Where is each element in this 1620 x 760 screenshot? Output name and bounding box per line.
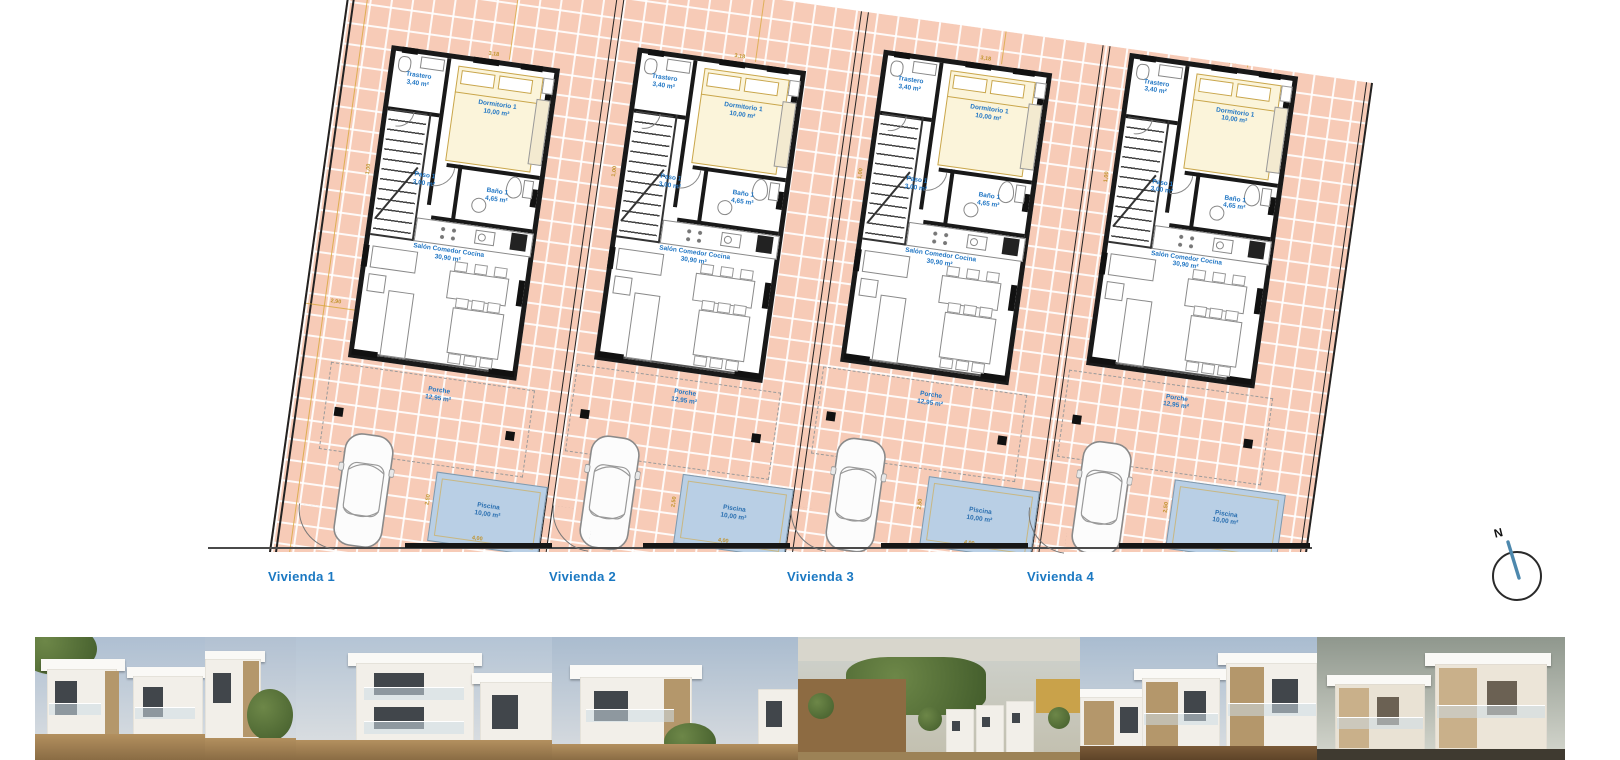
kitchen-sink [474, 230, 496, 247]
furniture-chair [971, 362, 985, 374]
furniture-nightstand [787, 80, 800, 97]
site-plan: 2,90 [0, 0, 1620, 552]
house-floorplan: Trastero3,40 m² Dormitorio 110,00 m² Pas… [348, 45, 560, 381]
kitchen-stove [926, 228, 952, 246]
window [1253, 288, 1263, 315]
kitchen-stove [1172, 230, 1198, 248]
furniture-chair [709, 358, 723, 370]
photo-strip [0, 637, 1620, 760]
dimension-line [509, 0, 523, 60]
kitchen-stove [434, 223, 460, 241]
window [1008, 285, 1018, 312]
window [521, 63, 544, 72]
fixture-storage-unit [420, 56, 445, 71]
window [648, 49, 665, 57]
furniture-chair [1217, 365, 1231, 377]
project-photo-4 [552, 637, 798, 760]
kitchen-stove [680, 226, 706, 244]
furniture-chair [479, 357, 493, 369]
dimension-text: 4,00 [471, 535, 482, 542]
window [607, 247, 616, 270]
furniture-chair [1193, 305, 1207, 317]
kitchen-sink [966, 235, 988, 252]
furniture-chair [1209, 307, 1223, 319]
dimension-line [1001, 0, 1015, 65]
furniture-chair [1224, 309, 1238, 321]
porch-post [334, 407, 344, 417]
window [1099, 252, 1108, 275]
porch-post [997, 436, 1007, 446]
furniture-chair [487, 302, 501, 314]
project-photo-6 [1080, 637, 1317, 760]
furniture-chair [455, 298, 469, 310]
furniture-side-table [1104, 281, 1124, 301]
fixture-storage-unit [1158, 64, 1183, 79]
furniture-nightstand [1279, 85, 1292, 102]
dimension-text: 1,00 [857, 168, 864, 179]
furniture-chair [947, 302, 961, 314]
porch-post [580, 409, 590, 419]
kitchen-fridge [1247, 240, 1265, 259]
fixture-storage-unit [912, 61, 937, 76]
window [843, 353, 870, 363]
dimension-text: 1,00 [611, 166, 618, 177]
dimension-text: 1,00 [1103, 171, 1110, 182]
unit-label-vivienda-4: Vivienda 4 [1027, 569, 1094, 585]
dimension-line [1247, 0, 1261, 67]
unit-label-vivienda-1: Vivienda 1 [268, 569, 335, 585]
window [488, 368, 515, 378]
front-fence [881, 543, 1028, 548]
dimension-text: 3,18 [1226, 58, 1237, 65]
furniture-chair [978, 307, 992, 319]
window [853, 249, 862, 272]
furniture-chair [471, 300, 485, 312]
furniture-sofa [1117, 297, 1152, 366]
furniture-side-table [366, 273, 386, 293]
compass-needle [1498, 532, 1542, 584]
furniture-chair [732, 304, 746, 316]
furniture-chair [955, 360, 969, 372]
house-floorplan: Trastero3,40 m² Dormitorio 110,00 m² Pas… [1086, 52, 1298, 388]
furniture-nightstand [1033, 82, 1046, 99]
fixture-storage-unit [666, 59, 691, 74]
furniture-sofa [625, 293, 660, 362]
dimension-text: 2,50 [916, 499, 923, 510]
dimension-text: 3,18 [734, 53, 745, 60]
porch-post [825, 412, 835, 422]
window [767, 66, 790, 75]
kitchen-fridge [755, 235, 773, 254]
furniture-chair [447, 353, 461, 365]
furniture-dining-table [938, 312, 996, 365]
window [473, 57, 500, 67]
window [762, 283, 772, 310]
plot-tiled-area: 2,90 [258, 0, 1373, 552]
kitchen-sink [1212, 237, 1234, 254]
dimension-text: 2,50 [670, 496, 677, 507]
window [1211, 64, 1238, 74]
window [719, 59, 746, 69]
window [965, 62, 992, 72]
furniture-chair [717, 302, 731, 314]
dimension-text: 3,18 [488, 51, 499, 58]
front-fence [405, 543, 552, 548]
furniture-dining-table [692, 310, 750, 363]
furniture-sofa [379, 290, 414, 359]
room-label-trastero: Trastero3,40 m² [633, 70, 695, 93]
window [351, 349, 378, 359]
dimension-text: 1,00 [365, 163, 372, 174]
window [980, 373, 1007, 383]
kitchen-fridge [1001, 238, 1019, 257]
furniture-dining-table [446, 307, 504, 360]
front-fence [643, 543, 790, 548]
furniture-nightstand [541, 78, 554, 95]
dimension-text: 2,50 [1162, 501, 1169, 512]
furniture-chair [463, 355, 477, 367]
room-label-trastero: Trastero3,40 m² [1125, 75, 1187, 98]
furniture-chair [963, 305, 977, 317]
room-label-trastero: Trastero3,40 m² [387, 68, 449, 91]
window [1258, 71, 1281, 80]
window [597, 351, 624, 361]
window [1089, 356, 1116, 366]
furniture-chair [725, 360, 739, 372]
dimension-line [755, 0, 769, 62]
project-photo-5 [798, 637, 1080, 760]
house-floorplan: Trastero3,40 m² Dormitorio 110,00 m² Pas… [594, 48, 806, 384]
furniture-chair [693, 355, 707, 367]
porch-post [1243, 438, 1253, 448]
window [1140, 54, 1157, 62]
window [402, 47, 419, 55]
furniture-chair [1185, 360, 1199, 372]
room-label-trastero: Trastero3,40 m² [879, 73, 941, 96]
project-photo-7 [1317, 637, 1565, 760]
dimension-text: 2,50 [424, 494, 431, 505]
window [1013, 68, 1036, 77]
window [361, 244, 370, 267]
unit-label-vivienda-2: Vivienda 2 [549, 569, 616, 585]
unit-label-vivienda-3: Vivienda 3 [787, 569, 854, 585]
window [894, 52, 911, 60]
project-photo-3 [296, 637, 552, 760]
furniture-chair [701, 300, 715, 312]
furniture-side-table [858, 278, 878, 298]
development-site-plan-page: 2,90 [0, 0, 1620, 760]
furniture-dining-table [1184, 315, 1242, 368]
dimension-text: 2,90 [330, 298, 341, 305]
furniture-chair [1201, 363, 1215, 375]
window [516, 280, 526, 307]
furniture-side-table [612, 276, 632, 296]
porch-post [1071, 414, 1081, 424]
front-fence [1119, 543, 1266, 548]
window [734, 370, 761, 380]
dimension-text: 3,18 [980, 56, 991, 63]
furniture-sofa [871, 295, 906, 364]
porch-post [751, 433, 761, 443]
front-fence [1266, 543, 1310, 548]
furniture-chair [939, 358, 953, 370]
project-photo-1 [35, 637, 205, 760]
vivienda-unit-1: Trastero3,40 m² Dormitorio 110,00 m² Pas… [308, 45, 621, 552]
kitchen-sink [720, 232, 742, 249]
project-photo-2 [205, 637, 296, 760]
porch-post [505, 431, 515, 441]
house-floorplan: Trastero3,40 m² Dormitorio 110,00 m² Pas… [840, 50, 1052, 386]
window [1226, 375, 1253, 385]
kitchen-fridge [509, 233, 527, 252]
